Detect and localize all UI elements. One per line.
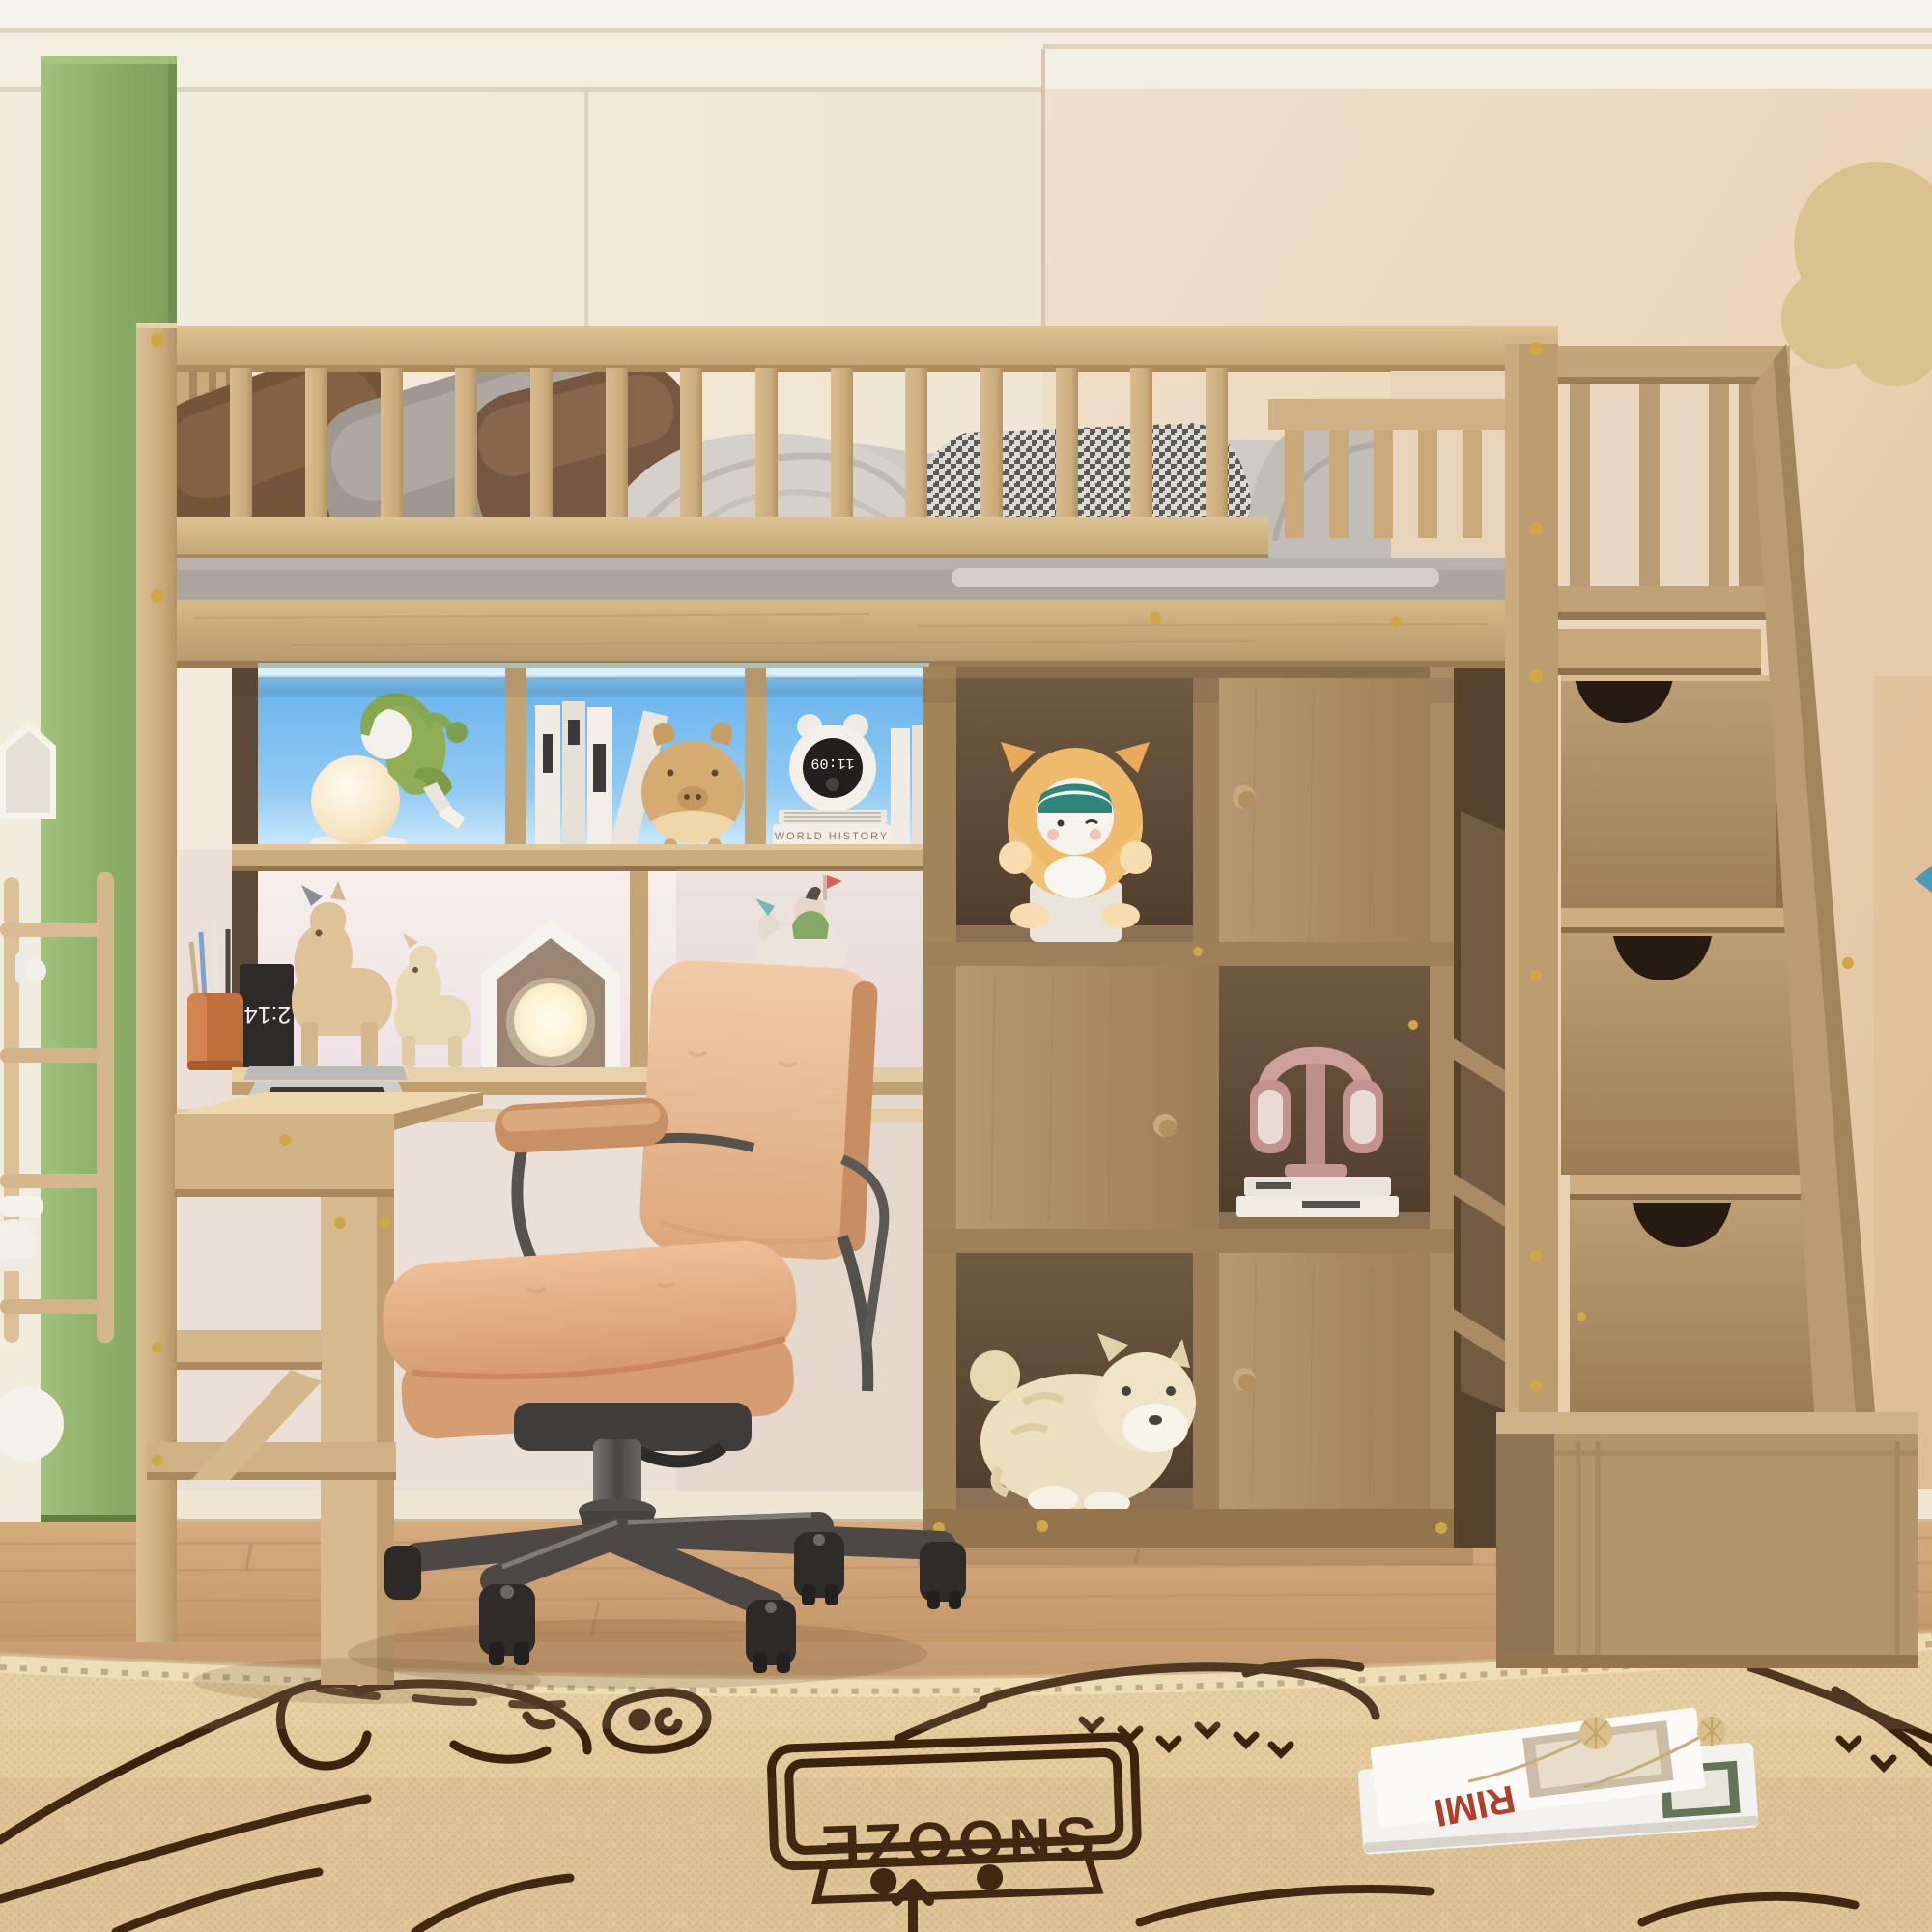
svg-text:WORLD HISTORY: WORLD HISTORY [775,831,890,842]
svg-text:11:09: 11:09 [810,754,854,771]
svg-text:2:14: 2:14 [244,1001,292,1028]
